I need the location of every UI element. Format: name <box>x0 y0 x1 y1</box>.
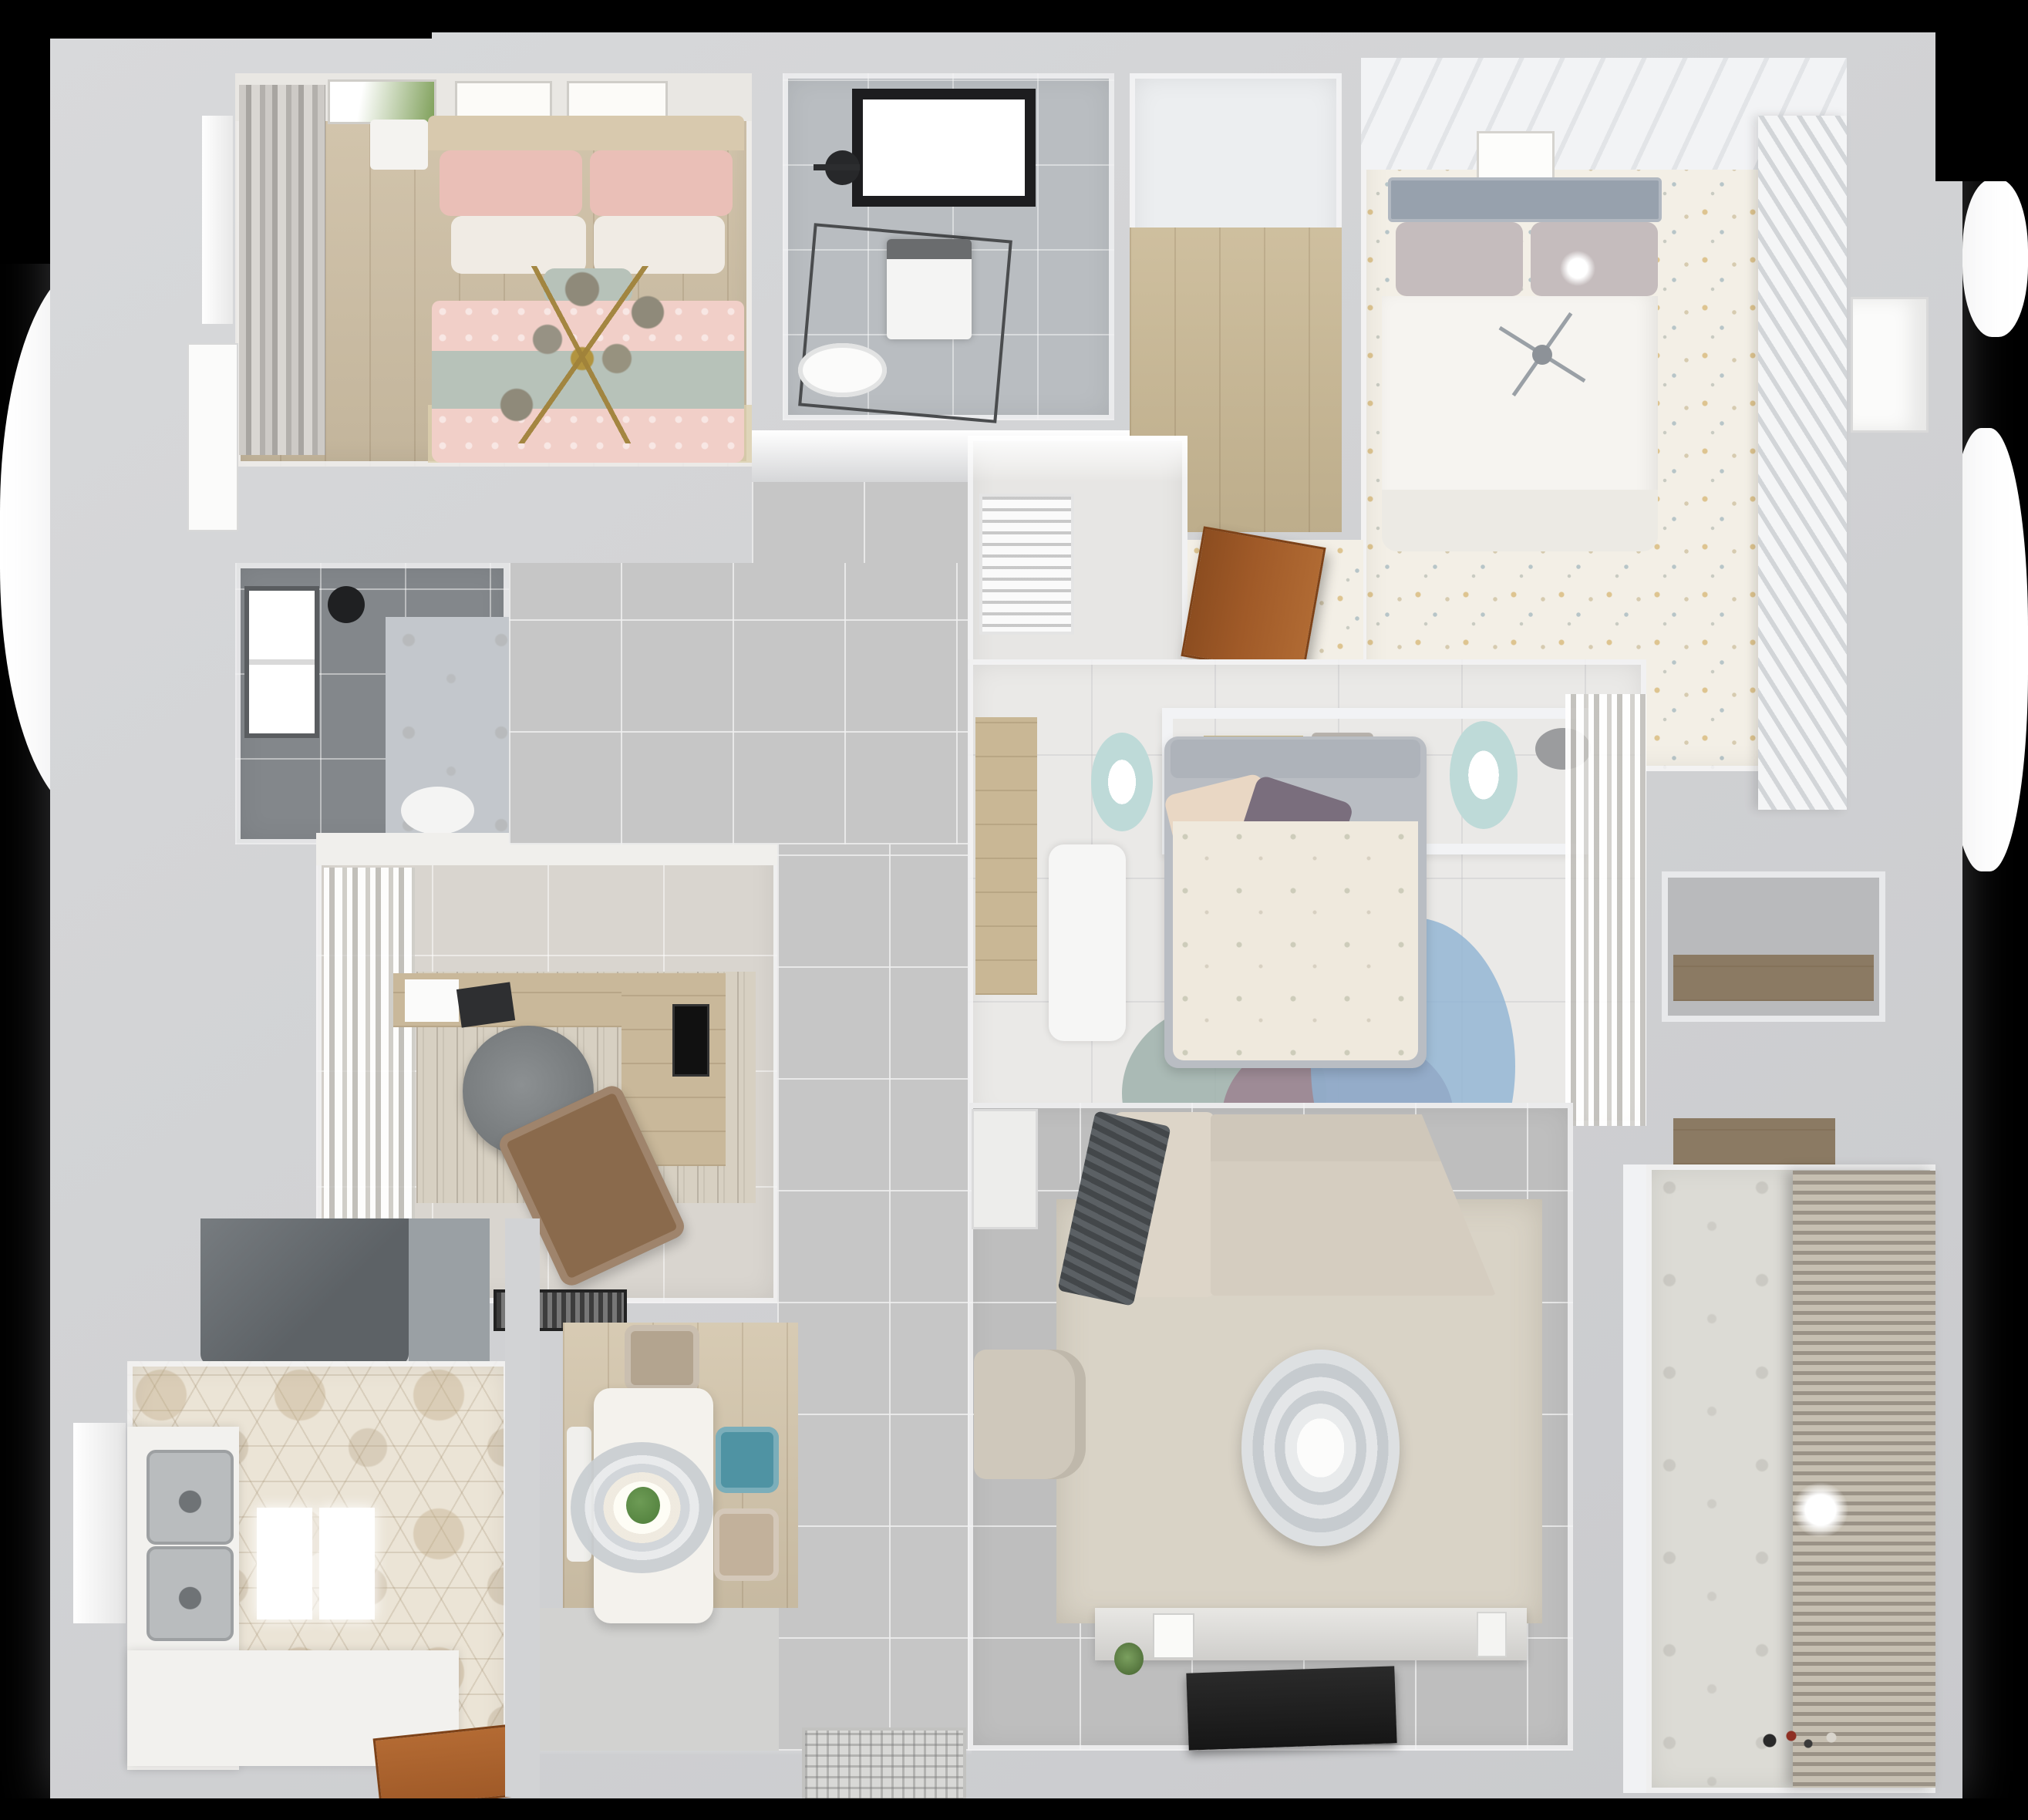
toilet <box>798 343 887 397</box>
frame-top-left <box>0 0 432 39</box>
chandelier-hub <box>1532 345 1552 365</box>
room-living <box>968 1103 1573 1751</box>
bright-panel <box>257 1508 312 1619</box>
room-bedroom-3 <box>968 659 1646 1126</box>
sink-lower <box>147 1546 234 1641</box>
gold-branch-chandelier <box>490 266 675 443</box>
stick-chandelier <box>1492 305 1592 405</box>
round-coffee-table <box>1241 1350 1400 1546</box>
teal-stool-right <box>1450 721 1518 829</box>
frame-left <box>0 32 50 264</box>
niche-wood-shelf <box>1673 955 1874 1001</box>
ceiling-lamp <box>1793 1482 1848 1538</box>
decor-green-dish <box>1114 1643 1144 1675</box>
corner-sofa <box>1211 1114 1496 1296</box>
laptop <box>456 982 515 1027</box>
flat-tv <box>1186 1666 1396 1750</box>
plant-centerpiece <box>626 1487 660 1524</box>
room-bathroom-1 <box>783 73 1114 420</box>
ball-lamp <box>1560 251 1595 286</box>
room-bathroom-2 <box>235 563 509 844</box>
air-vent-louver <box>979 494 1074 635</box>
floral-duvet <box>1173 821 1418 1060</box>
skylight <box>852 89 1036 207</box>
side-table <box>972 1109 1038 1229</box>
white-pillow-left <box>451 216 586 274</box>
bed3-headboard <box>1171 740 1420 778</box>
decor-vase <box>1477 1612 1507 1657</box>
kitchen-dining-wall <box>505 1218 540 1797</box>
light-bleed-top-right <box>1962 179 2028 337</box>
hallway-floor <box>509 563 968 844</box>
pink-pillow-left <box>440 150 582 216</box>
floor-plan <box>0 0 2028 1820</box>
monitor <box>672 1004 709 1077</box>
shower-head <box>328 586 365 623</box>
decor-frames <box>1153 1613 1194 1659</box>
washing-machine <box>887 239 972 339</box>
shower-arm <box>814 164 860 170</box>
range-hood <box>200 1218 409 1365</box>
teal-stool-left <box>1091 733 1153 831</box>
armchair <box>974 1350 1086 1479</box>
white-pillow-right <box>594 216 725 274</box>
wood-shelf <box>1673 1118 1835 1164</box>
hood-duct <box>409 1218 490 1365</box>
balcony-left-wall <box>1623 1164 1646 1793</box>
sheer-curtains <box>1565 694 1646 1126</box>
window <box>244 586 319 738</box>
bed2-pillow-left <box>1396 222 1523 296</box>
room-balcony <box>1600 1118 1939 1797</box>
toilet <box>401 787 474 834</box>
bed2-blanket-fold <box>1382 490 1658 551</box>
nightstand <box>370 120 428 170</box>
slatted-wardrobe <box>1758 116 1847 810</box>
sink-upper <box>147 1450 234 1545</box>
window <box>202 116 233 324</box>
white-desk <box>1049 844 1126 1041</box>
bed3-frame <box>1164 736 1427 1068</box>
bed1-headboard <box>428 116 744 150</box>
roller-blinds <box>1793 1171 1935 1788</box>
room-dining <box>540 1303 972 1762</box>
frame-top-right <box>1935 0 2028 181</box>
curtains-grey <box>239 85 325 455</box>
entry-doormat <box>802 1727 966 1803</box>
room-bedroom-1 <box>235 73 752 467</box>
art-frame <box>1477 131 1555 184</box>
chair-teal <box>716 1427 779 1493</box>
art-frame-botanical <box>328 79 436 124</box>
wood-wall-panel <box>975 717 1037 995</box>
white-door-leaf <box>187 343 238 531</box>
wall-niche <box>1662 871 1885 1022</box>
toys <box>1754 1724 1847 1758</box>
frame-bottom <box>0 1798 2028 1820</box>
window <box>73 1423 126 1623</box>
vestibule-glow <box>968 436 1187 482</box>
pink-pillow-right <box>590 150 733 216</box>
bed2-headboard <box>1388 177 1662 222</box>
hallway-floor <box>752 482 968 567</box>
white-door <box>1851 297 1929 433</box>
bed2-pillow-right <box>1531 222 1658 296</box>
bright-panel <box>319 1508 375 1619</box>
room-kitchen <box>73 1191 509 1797</box>
chair-taupe <box>625 1325 699 1391</box>
papers <box>405 979 459 1022</box>
open-wood-door <box>1181 526 1326 677</box>
chair-beige <box>714 1508 779 1581</box>
